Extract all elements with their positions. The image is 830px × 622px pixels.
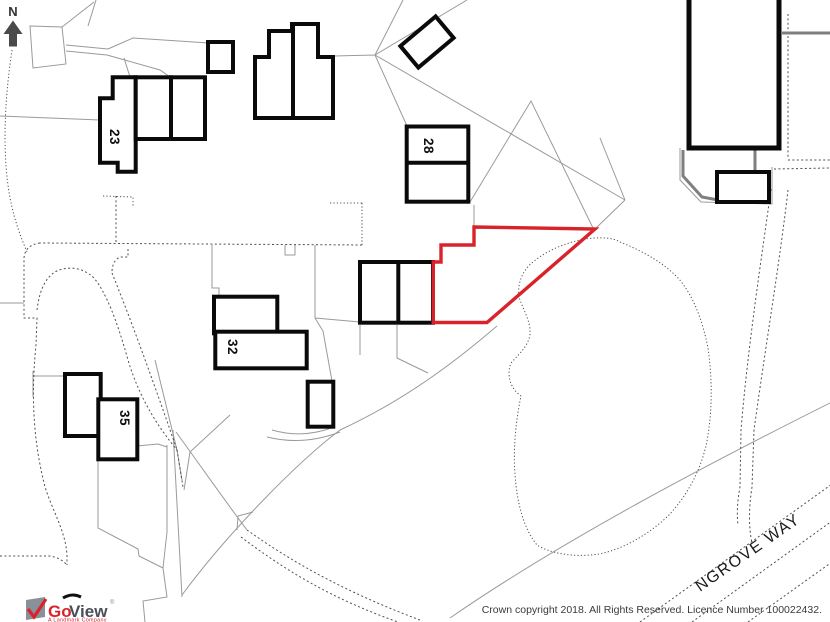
- building-32-label: 32: [225, 339, 240, 355]
- north-arrow-label: N: [8, 4, 17, 19]
- goview-roof-icon: [63, 595, 81, 598]
- pond-outline: [509, 238, 711, 556]
- garage-topright: [717, 172, 769, 202]
- north-arrow-icon: [4, 21, 23, 47]
- building-35-label: 35: [117, 410, 132, 426]
- small-outbuilding-mid: [308, 382, 334, 427]
- building-35-lower: [98, 399, 137, 459]
- copyright-text: Crown copyright 2018. All Rights Reserve…: [482, 604, 822, 616]
- north-arrow: N: [4, 4, 23, 47]
- building-23-label: 23: [107, 129, 122, 145]
- small-outbuilding-top: [208, 42, 233, 72]
- map-canvas: 23 28 32 35 NGROVE WAY N Go View ® A Lan…: [0, 0, 830, 622]
- goview-tagline: A Landmark Company: [48, 618, 107, 622]
- building-32-upper: [214, 297, 277, 334]
- large-building-topright: [689, 0, 779, 148]
- buildings: [65, 0, 779, 459]
- building-row-right: [171, 77, 205, 139]
- building-28-label: 28: [421, 138, 436, 154]
- street-label: NGROVE WAY: [693, 511, 804, 595]
- rotated-outbuilding: [400, 16, 453, 67]
- goview-logo: Go View ® A Landmark Company: [26, 595, 115, 622]
- building-row-left: [136, 77, 171, 139]
- registered-mark: ®: [110, 599, 115, 606]
- building-23-outline: [100, 77, 136, 171]
- target-plot-boundary: [433, 227, 595, 323]
- site-plan-map: 23 28 32 35 NGROVE WAY N Go View ® A Lan…: [0, 0, 830, 622]
- building-35-upper: [65, 374, 101, 436]
